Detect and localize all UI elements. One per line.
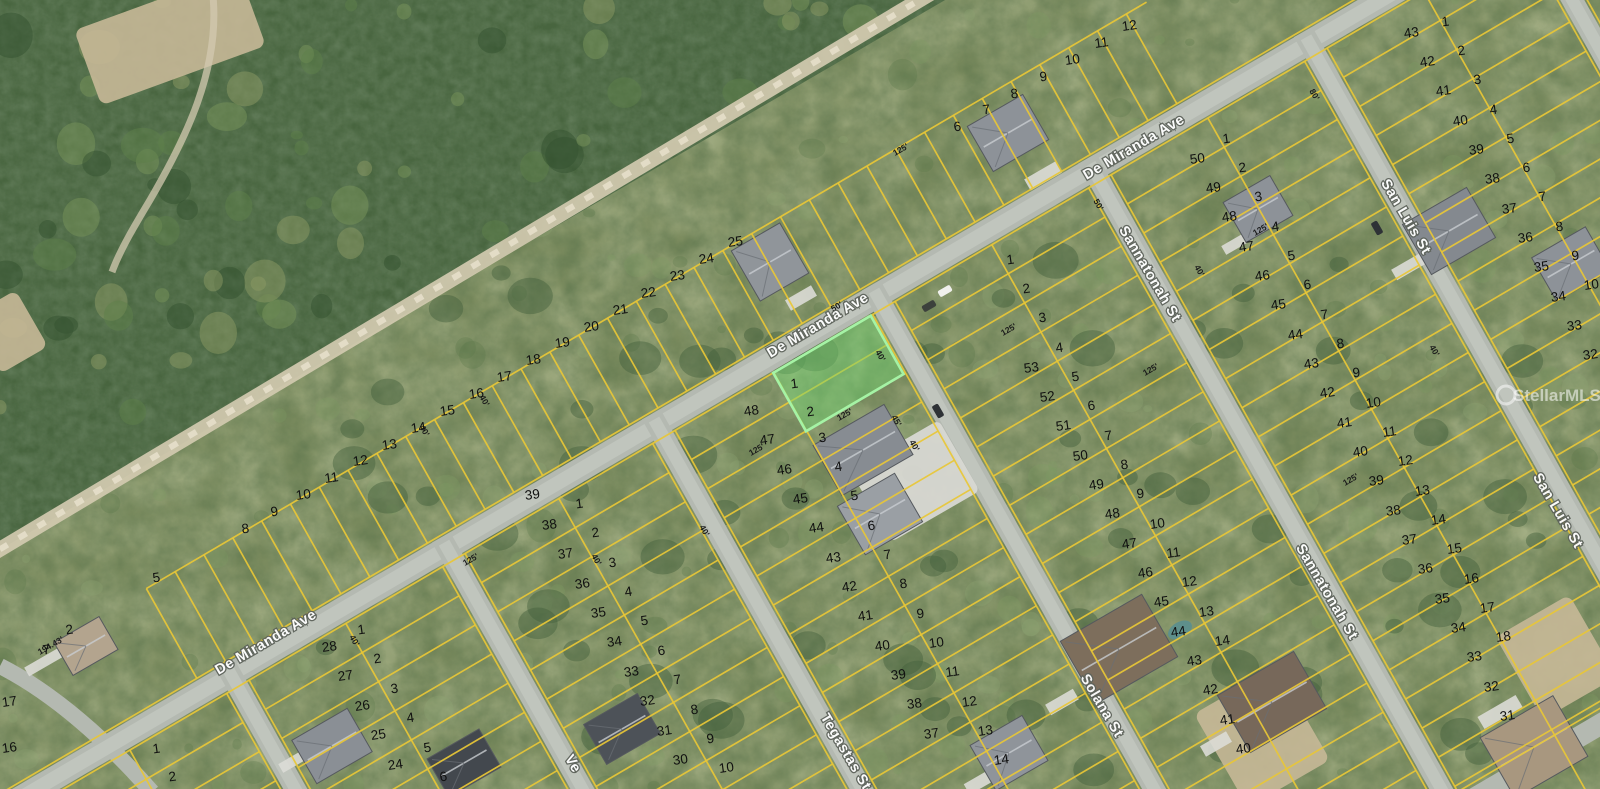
lot-number: 10 [928,634,945,651]
lot-number: 40 [1452,112,1469,129]
lot-number: 44 [808,519,825,536]
lot-number: 22 [640,284,657,301]
lot-number: 11 [1093,34,1109,51]
lot-number: 41 [857,607,874,624]
lot-number: 39 [524,486,541,503]
lot-number: 38 [541,516,558,533]
lot-number: 28 [321,638,338,655]
lot-number: 37 [923,725,940,742]
lot-number: 46 [1137,564,1154,581]
lot-number: 39 [890,666,907,683]
lot-number: 17 [496,368,513,385]
lot-number: 43 [1403,24,1420,41]
lot-number: 37 [1501,200,1518,217]
lot-number: 45 [1270,296,1287,313]
lot-number: 10 [1064,51,1081,68]
lot-number: 31 [656,722,673,739]
lot-number: 45 [1153,593,1170,610]
lot-number: 35 [590,604,607,621]
lot-number: 44 [1170,623,1187,640]
lot-number: 13 [1198,603,1215,620]
lot-number: 38 [1385,502,1402,519]
lot-number: 48 [743,402,760,419]
lot-number: 21 [612,301,629,318]
lot-number: 37 [1401,531,1418,548]
lot-number: 20 [583,318,600,335]
lot-number: 33 [1566,317,1583,334]
lot-number: 12 [1397,452,1414,469]
lot-number: 49 [1088,476,1105,493]
lot-number: 14 [1214,632,1231,649]
lot-number: 33 [1466,648,1483,665]
lot-number: 10 [1583,276,1600,293]
lot-number: 34 [1450,619,1467,636]
lot-number: 41 [1219,711,1236,728]
lot-number: 43 [1186,652,1203,669]
lot-number: 14 [410,419,427,436]
lot-number: 46 [1254,267,1271,284]
lot-number: 42 [1319,384,1336,401]
lot-number: 13 [1414,482,1431,499]
lot-number: 11 [1381,423,1397,440]
lot-number: 47 [1238,238,1255,255]
lot-number: 10 [295,486,312,503]
lot-number: 15 [439,402,456,419]
lot-number: 11 [944,663,960,680]
lot-number: 10 [1365,394,1382,411]
lot-number: 26 [354,697,371,714]
lot-number: 16 [1,739,18,756]
lot-number: 48 [1104,505,1121,522]
lot-number: 24 [698,250,715,267]
lot-number: 35 [1434,590,1451,607]
lot-number: 32 [1582,346,1599,363]
lot-number: 18 [1495,628,1512,645]
lot-number: 49 [1205,179,1222,196]
lot-number: 13 [381,436,398,453]
lot-number: 10 [1149,515,1166,532]
lot-number: 12 [1181,573,1198,590]
lot-number: 36 [1417,560,1434,577]
lot-number: 18 [525,351,542,368]
lot-number: 24 [387,756,404,773]
lot-number: 51 [1055,417,1072,434]
lot-number: 13 [977,722,994,739]
lot-number: 52 [1039,388,1056,405]
lot-number: 43 [1303,355,1320,372]
lot-number: 10 [718,759,735,776]
lot-number: 40 [874,637,891,654]
lot-number: 14 [993,751,1010,768]
lot-number: 25 [370,726,387,743]
lot-number: 46 [776,461,793,478]
aerial-parcel-map: 50'40'45'125'50'40'125'125'40'125'40'125… [0,0,1600,789]
lot-number: 19 [554,334,571,351]
lot-number: 38 [906,695,923,712]
lot-number: 50 [1189,150,1206,167]
lot-number: 17 [1,693,18,710]
lot-number: 32 [639,692,656,709]
lot-number: 44 [1287,326,1304,343]
watermark: StellarMLS [1497,386,1600,405]
lot-number: 27 [337,667,354,684]
lot-number: 45 [792,490,809,507]
lot-number: 15 [1446,540,1463,557]
lot-number: 53 [1023,359,1040,376]
lot-number: 11 [1165,544,1181,561]
lot-number: 35 [1533,258,1550,275]
lot-number: 48 [1221,208,1238,225]
lot-number: 42 [841,578,858,595]
lot-number: 42 [1419,53,1436,70]
watermark-text: StellarMLS [1513,386,1600,405]
lot-number: 41 [1435,82,1452,99]
satellite-map-canvas: 50'40'45'125'50'40'125'125'40'125'40'125… [0,0,1600,789]
lot-number: 16 [1463,570,1480,587]
lot-number: 14 [1430,511,1447,528]
lot-number: 38 [1484,170,1501,187]
lot-number: 34 [1550,288,1567,305]
lot-number: 39 [1368,472,1385,489]
lot-number: 25 [727,233,744,250]
lot-number: 40 [1235,740,1252,757]
lot-number: 47 [1121,535,1138,552]
lot-number: 23 [669,267,686,284]
lot-number: 39 [1468,141,1485,158]
lot-number: 33 [623,663,640,680]
lot-number: 30 [672,751,689,768]
lot-number: 17 [1479,599,1496,616]
lot-number: 37 [557,545,574,562]
lot-number: 32 [1483,678,1500,695]
lot-number: 43 [825,549,842,566]
lot-number: 40 [1352,443,1369,460]
lot-number: 16 [468,385,485,402]
lot-number: 11 [323,469,339,486]
lot-number: 41 [1336,414,1353,431]
lot-number: 36 [574,575,591,592]
lot-number: 12 [1121,17,1138,34]
lot-number: 47 [759,431,776,448]
lot-number: 12 [352,452,369,469]
lot-number: 42 [1202,681,1219,698]
lot-number: 12 [961,693,978,710]
lot-number: 31 [1499,707,1516,724]
lot-number: 50 [1072,447,1089,464]
lot-number: 34 [606,633,623,650]
lot-number: 36 [1517,229,1534,246]
